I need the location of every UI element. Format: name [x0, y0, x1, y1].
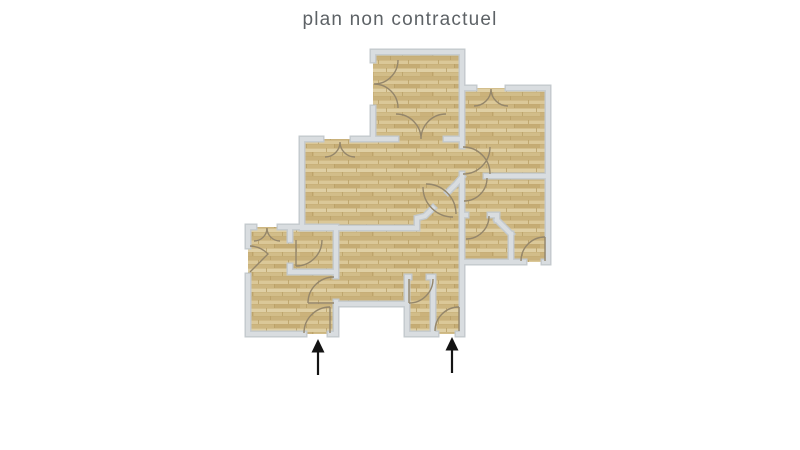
- page-title: plan non contractuel: [302, 9, 497, 30]
- entrance-arrows: [312, 337, 459, 375]
- entrance-arrow-left-icon: [312, 339, 325, 375]
- entrance-arrow-right-icon: [446, 337, 459, 373]
- floorplan-canvas: plan non contractuel: [0, 0, 800, 450]
- floorplan-page: plan non contractuel: [0, 0, 800, 450]
- floor-area: [248, 52, 548, 334]
